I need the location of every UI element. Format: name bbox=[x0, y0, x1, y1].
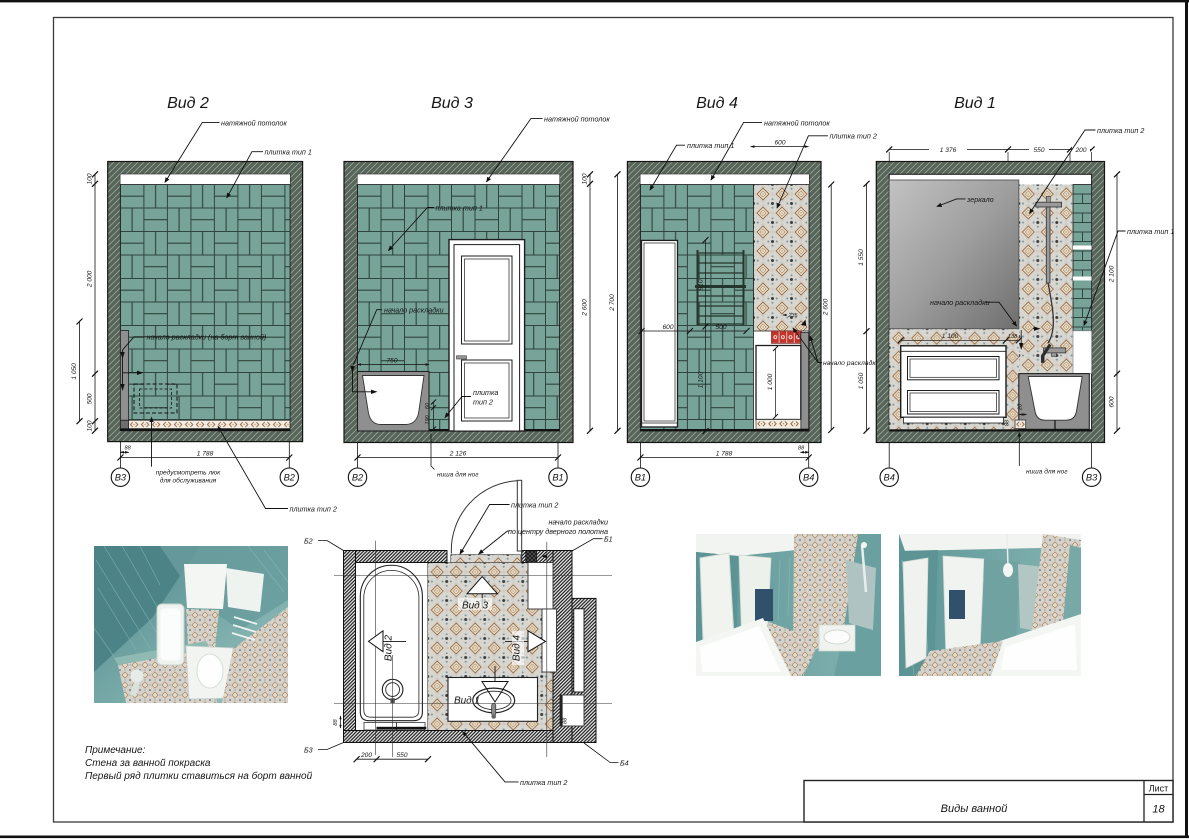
svg-text:2 600: 2 600 bbox=[823, 298, 830, 316]
svg-text:начало раскладки: начало раскладки bbox=[384, 306, 444, 315]
svg-text:Первый ряд плитки ставиться на: Первый ряд плитки ставиться на борт ванн… bbox=[85, 770, 313, 782]
svg-text:2 700: 2 700 bbox=[609, 294, 616, 312]
svg-text:100: 100 bbox=[87, 173, 94, 184]
svg-text:плитка тип 1: плитка тип 1 bbox=[265, 148, 312, 157]
svg-text:88: 88 bbox=[563, 717, 569, 724]
svg-text:натяжной потолок: натяжной потолок bbox=[764, 118, 830, 127]
svg-text:Стена за ванной покраска: Стена за ванной покраска bbox=[85, 758, 211, 769]
svg-text:Вид 4: Вид 4 bbox=[696, 95, 738, 112]
svg-text:550: 550 bbox=[396, 752, 407, 759]
svg-text:1 376: 1 376 bbox=[940, 147, 957, 154]
svg-text:20: 20 bbox=[1018, 403, 1024, 411]
svg-text:550: 550 bbox=[1033, 147, 1044, 154]
svg-text:Вид 1: Вид 1 bbox=[954, 95, 996, 112]
svg-text:1 050: 1 050 bbox=[858, 372, 865, 389]
svg-text:зеркало: зеркало bbox=[966, 195, 994, 204]
svg-text:Вид 2: Вид 2 bbox=[167, 95, 209, 112]
svg-text:200: 200 bbox=[360, 752, 372, 759]
svg-text:плитка: плитка bbox=[473, 388, 498, 397]
svg-text:1 788: 1 788 bbox=[716, 451, 733, 458]
svg-text:910: 910 bbox=[698, 279, 705, 290]
svg-text:Вид 4: Вид 4 bbox=[512, 635, 523, 662]
svg-text:В1: В1 bbox=[552, 473, 563, 483]
svg-text:В2: В2 bbox=[352, 473, 364, 483]
svg-text:100: 100 bbox=[582, 173, 589, 184]
svg-text:плитка тип 1: плитка тип 1 bbox=[1127, 227, 1174, 236]
svg-text:2 600: 2 600 bbox=[582, 299, 589, 317]
svg-text:Виды ванной: Виды ванной bbox=[941, 803, 1008, 815]
svg-text:плитка тип 1: плитка тип 1 bbox=[436, 203, 483, 212]
svg-text:плитка тип 2: плитка тип 2 bbox=[520, 778, 567, 787]
svg-text:600: 600 bbox=[1109, 396, 1116, 407]
svg-text:Лист: Лист bbox=[1149, 784, 1169, 794]
svg-text:плитка тип 2: плитка тип 2 bbox=[830, 132, 877, 141]
svg-text:1 100: 1 100 bbox=[698, 371, 705, 388]
svg-text:для обслуживания: для обслуживания bbox=[160, 477, 217, 485]
svg-text:2 000: 2 000 bbox=[87, 270, 94, 288]
svg-text:Вид 3: Вид 3 bbox=[462, 601, 489, 612]
svg-text:88: 88 bbox=[333, 719, 339, 726]
svg-text:600: 600 bbox=[662, 324, 673, 331]
svg-text:Вид 2: Вид 2 bbox=[384, 635, 395, 662]
svg-text:натяжной потолок: натяжной потолок bbox=[221, 118, 287, 127]
svg-text:2 126: 2 126 bbox=[449, 451, 467, 458]
svg-text:плитка тип 2: плитка тип 2 bbox=[290, 504, 337, 513]
svg-text:В3: В3 bbox=[115, 473, 127, 483]
svg-text:500: 500 bbox=[715, 324, 726, 331]
svg-text:ниша для ног: ниша для ног bbox=[1026, 467, 1068, 475]
svg-text:Примечание:: Примечание: bbox=[85, 745, 146, 756]
svg-text:Б4: Б4 bbox=[620, 758, 629, 767]
svg-text:88: 88 bbox=[125, 446, 132, 452]
svg-text:Б3: Б3 bbox=[304, 745, 313, 754]
svg-text:В3: В3 bbox=[1086, 473, 1098, 483]
svg-text:Вид 1: Вид 1 bbox=[454, 695, 480, 706]
svg-text:1 788: 1 788 bbox=[197, 451, 214, 458]
svg-text:1 550: 1 550 bbox=[858, 249, 865, 266]
svg-text:по центру дверного полотна: по центру дверного полотна bbox=[508, 527, 608, 536]
svg-text:60: 60 bbox=[425, 402, 431, 409]
svg-text:500: 500 bbox=[87, 393, 94, 404]
svg-text:200: 200 bbox=[1074, 147, 1086, 154]
svg-text:600: 600 bbox=[774, 139, 785, 146]
svg-text:18: 18 bbox=[1152, 804, 1165, 816]
svg-text:750: 750 bbox=[386, 357, 397, 364]
svg-text:88: 88 bbox=[798, 446, 805, 452]
svg-text:1 000: 1 000 bbox=[767, 373, 774, 390]
svg-text:В2: В2 bbox=[284, 473, 296, 483]
svg-text:100: 100 bbox=[87, 420, 94, 431]
svg-text:В4: В4 bbox=[884, 473, 895, 483]
svg-text:плитка тип 1: плитка тип 1 bbox=[687, 141, 734, 150]
svg-text:190: 190 bbox=[425, 414, 431, 424]
svg-text:начало раскладки: начало раскладки bbox=[548, 518, 608, 527]
svg-text:предусмотреть люк: предусмотреть люк bbox=[156, 468, 221, 476]
svg-text:плитка тип 2: плитка тип 2 bbox=[511, 500, 558, 509]
svg-text:235: 235 bbox=[787, 313, 798, 319]
svg-text:В1: В1 bbox=[635, 473, 646, 483]
svg-text:Вид 3: Вид 3 bbox=[431, 95, 473, 112]
svg-text:Б2: Б2 bbox=[304, 536, 313, 545]
svg-text:138: 138 bbox=[1008, 334, 1018, 340]
svg-text:тип 2: тип 2 bbox=[473, 397, 493, 406]
svg-text:1 050: 1 050 bbox=[71, 363, 78, 380]
svg-text:ниша для ног: ниша для ног bbox=[437, 470, 479, 478]
svg-text:начало раскладки: начало раскладки bbox=[930, 298, 990, 307]
svg-text:88: 88 bbox=[1005, 419, 1011, 426]
svg-text:натяжной потолок: натяжной потолок bbox=[544, 114, 610, 123]
svg-text:плитка тип 2: плитка тип 2 bbox=[1097, 126, 1144, 135]
svg-text:1 100: 1 100 bbox=[942, 333, 959, 340]
svg-text:В4: В4 bbox=[803, 473, 814, 483]
svg-text:2 100: 2 100 bbox=[1109, 265, 1116, 283]
